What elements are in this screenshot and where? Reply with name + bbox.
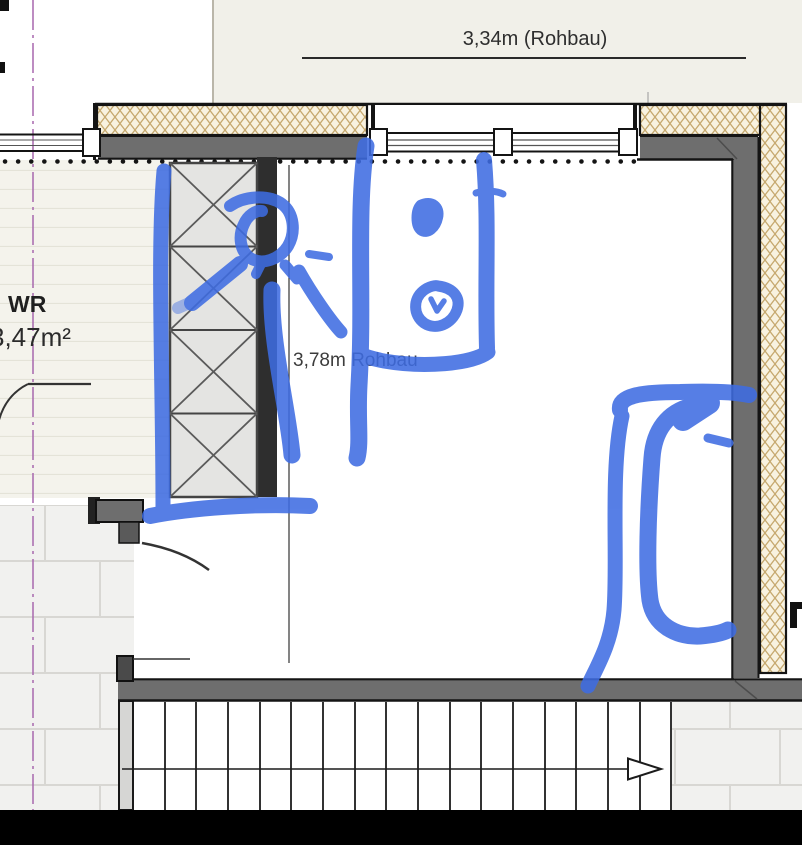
top-dimension-label: 3,34m (Rohbau) [463, 28, 608, 50]
wall-top-right-corner [640, 137, 758, 160]
annotation-stroke-small-dash [309, 254, 329, 257]
annotation-stroke-left-vertical [161, 171, 164, 508]
wall-stub [96, 500, 143, 522]
annotation-blob [416, 202, 440, 233]
window-mullion [494, 129, 512, 155]
insulation-right [760, 105, 786, 673]
floor-plan-screenshot: 3,34m (Rohbau) [0, 0, 802, 845]
wall-top-left [98, 137, 367, 157]
door-jamb-upper [119, 522, 139, 543]
letterbox-bottom [0, 810, 802, 845]
wall-right [734, 158, 758, 678]
door-jamb-lower [117, 656, 133, 681]
stair-side-strip [119, 701, 133, 810]
wall-bottom [118, 681, 802, 700]
masonry-left [0, 505, 134, 810]
corner-mark [0, 0, 9, 11]
masonry-right [672, 702, 802, 810]
window-mullion [83, 129, 100, 156]
window-jamb-left [371, 105, 375, 132]
annotation-stroke-mid-vertical [357, 146, 366, 458]
room-name-label: WR [8, 291, 47, 317]
window-opening [372, 105, 636, 132]
window-mullion [619, 129, 637, 155]
exterior-area [214, 0, 802, 103]
room-area-label: 3,47m² [0, 322, 71, 352]
annotation-stroke-tick [476, 191, 503, 194]
annotation-stroke-ring-tail [256, 262, 262, 274]
annotation-stroke-right-small-dash [708, 438, 729, 443]
window-jamb-right [633, 105, 637, 132]
annotation-stroke-bracket-start-blob [683, 403, 709, 420]
annotation-stroke-shaft-diagonal-tail [178, 300, 196, 308]
edge-tick [0, 62, 5, 73]
insulation-top-left [97, 105, 367, 135]
